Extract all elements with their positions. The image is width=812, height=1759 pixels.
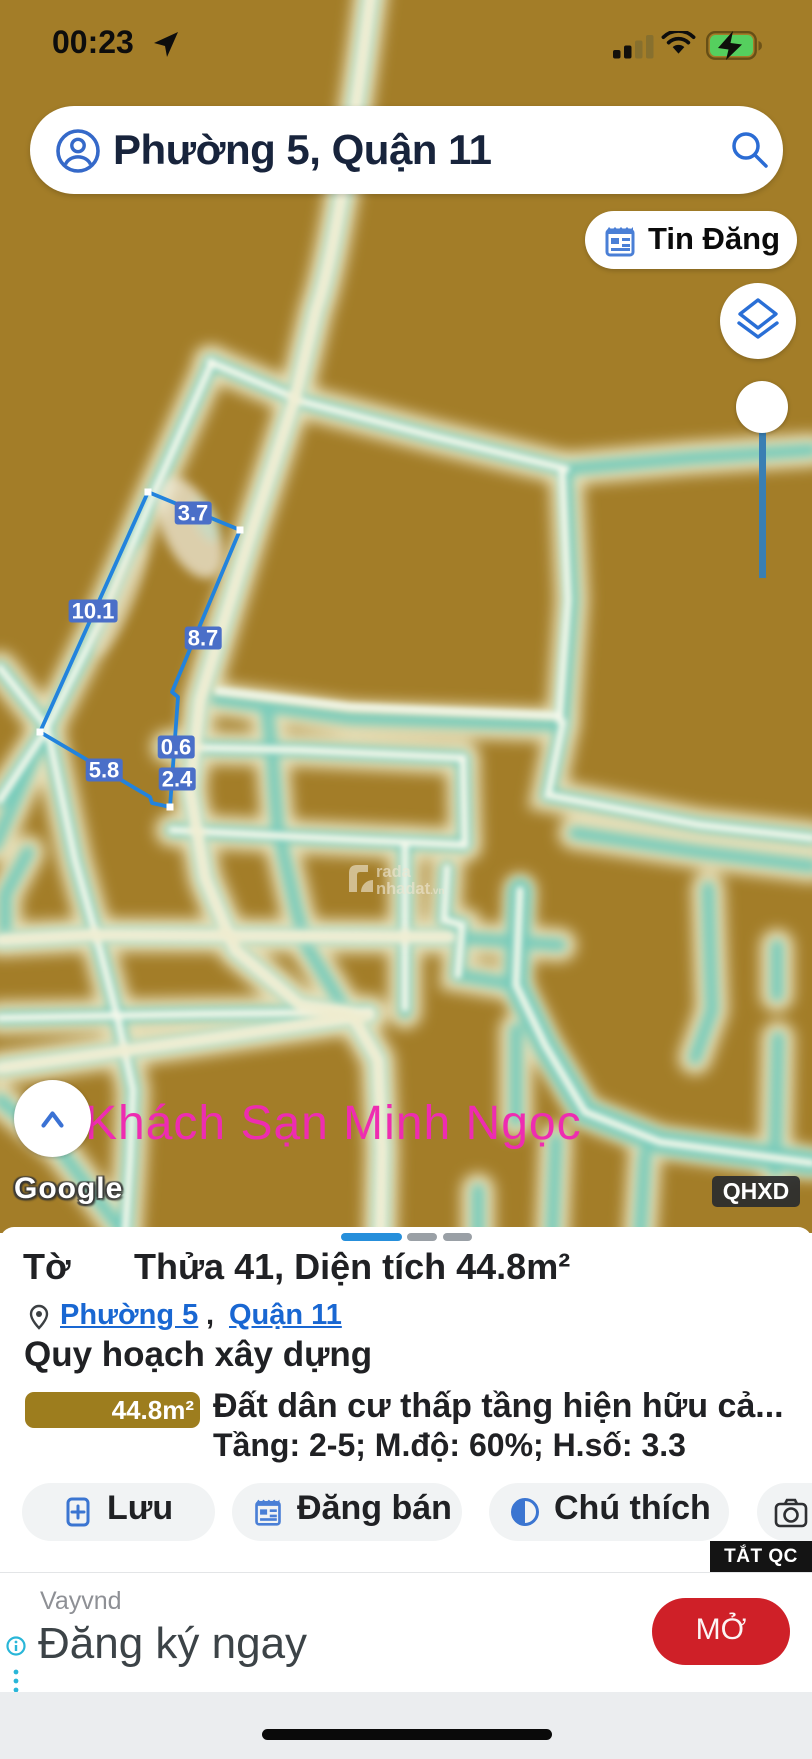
svg-text:nhadat.vn: nhadat.vn	[376, 880, 445, 898]
svg-text:rada: rada	[376, 864, 412, 881]
